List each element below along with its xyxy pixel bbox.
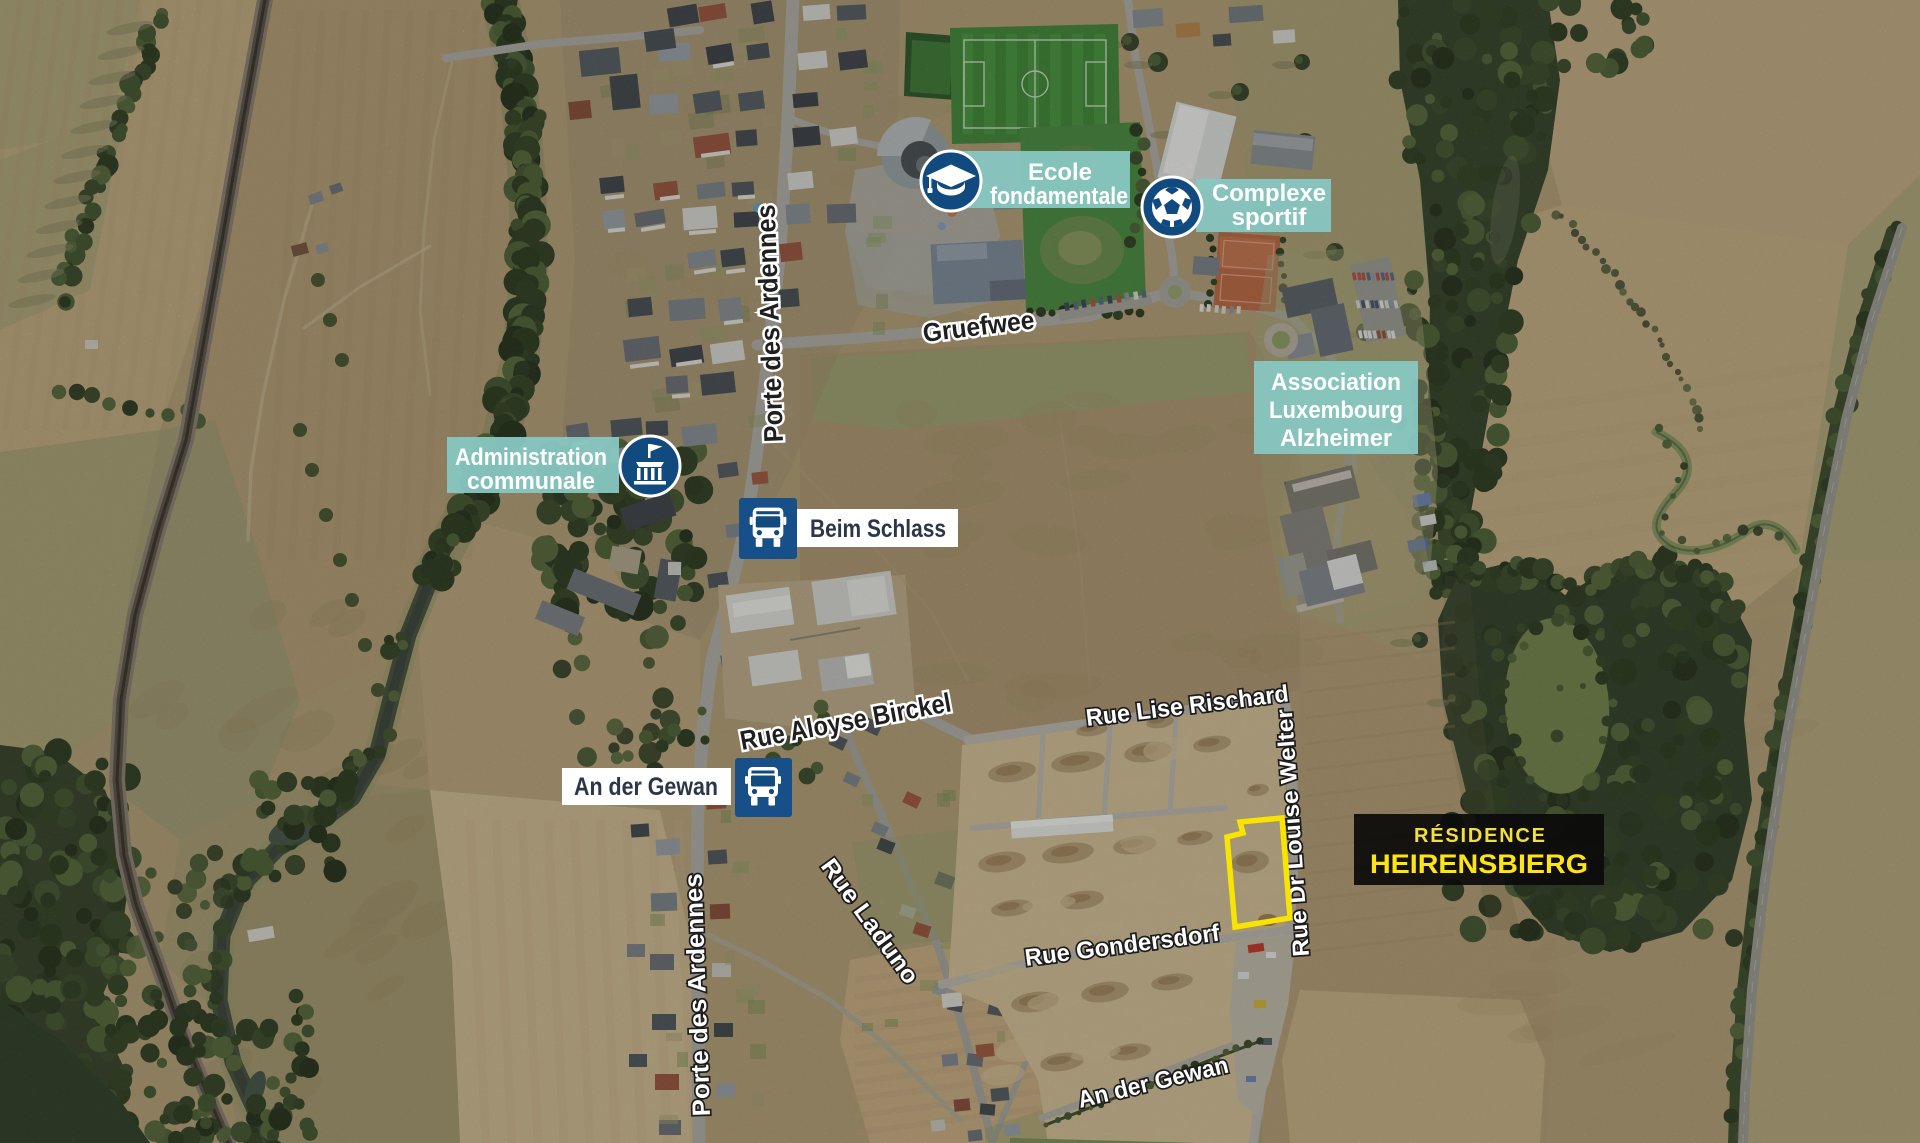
svg-text:Luxembourg: Luxembourg <box>1269 397 1403 424</box>
svg-text:fondamentale: fondamentale <box>990 183 1128 210</box>
svg-text:Beim Schlass: Beim Schlass <box>810 515 946 543</box>
svg-text:An der Gewan: An der Gewan <box>574 773 718 801</box>
svg-text:communale: communale <box>467 468 595 495</box>
svg-text:Alzheimer: Alzheimer <box>1280 425 1392 452</box>
svg-text:HEIRENSBIERG: HEIRENSBIERG <box>1370 849 1588 879</box>
svg-text:Association: Association <box>1271 369 1401 396</box>
svg-text:Complexe: Complexe <box>1212 180 1326 207</box>
svg-text:sportif: sportif <box>1232 204 1308 231</box>
svg-text:Administration: Administration <box>455 444 607 471</box>
svg-text:Ecole: Ecole <box>1028 159 1092 186</box>
svg-text:RÉSIDENCE: RÉSIDENCE <box>1414 824 1545 847</box>
